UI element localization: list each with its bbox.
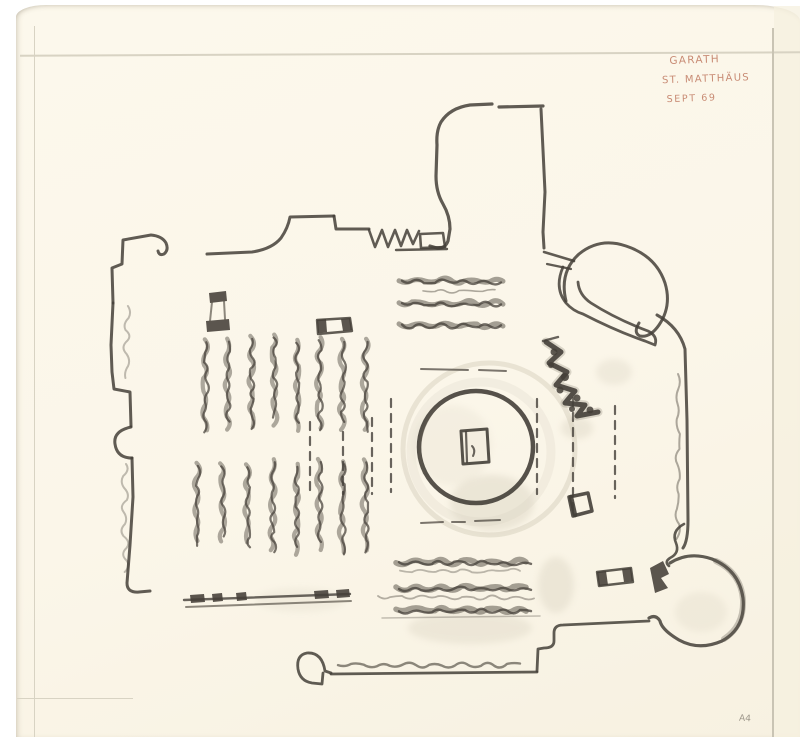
charcoal-strokes [111, 104, 743, 684]
sheet-mark: A4 [739, 714, 752, 725]
floor-plan-sketch [0, 0, 800, 737]
scanned-sheet: GARATH ST. MATTHÄUS SEPT 69 A4 [0, 0, 800, 737]
annotation-location: GARATH [669, 52, 791, 67]
handwritten-annotation: GARATH ST. MATTHÄUS SEPT 69 [661, 52, 793, 105]
annotation-church-name: ST. MATTHÄUS [662, 71, 792, 86]
